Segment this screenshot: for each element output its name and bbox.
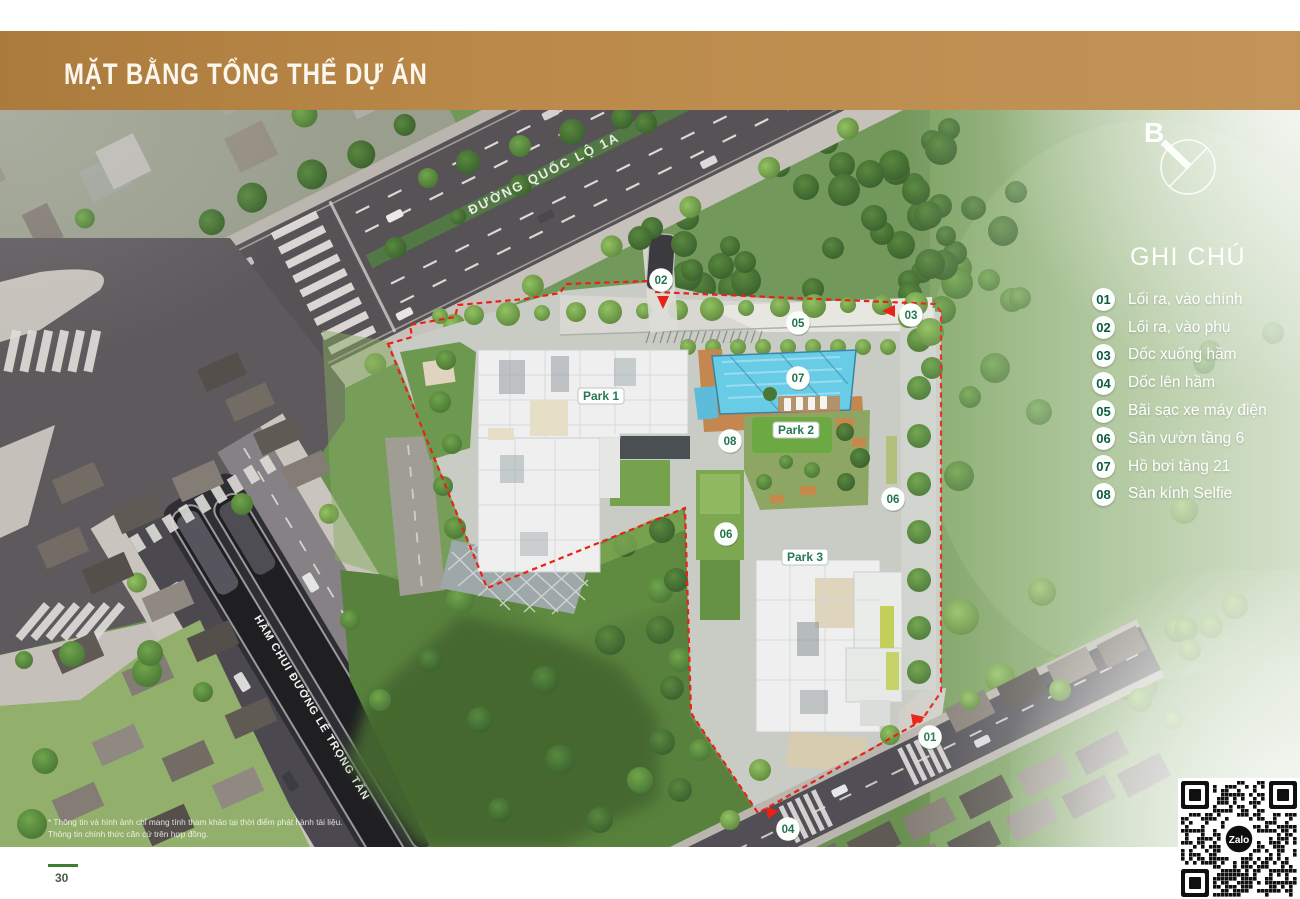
svg-text:Zalo: Zalo bbox=[1229, 835, 1250, 846]
svg-text:B: B bbox=[1144, 117, 1164, 148]
